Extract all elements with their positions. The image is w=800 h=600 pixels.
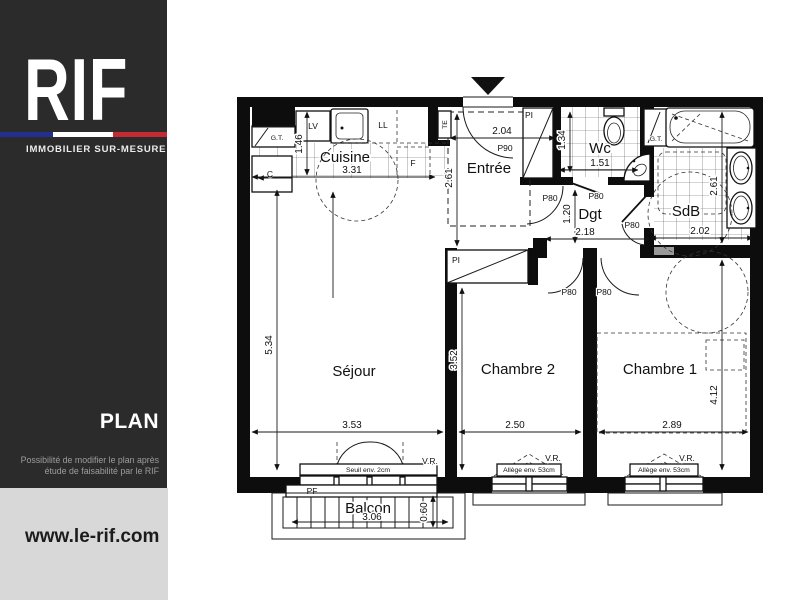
room-sejour: Séjour 5.34 3.53 Seuil env. 2cm V.R. — [252, 190, 443, 475]
bed-dashed — [597, 333, 746, 433]
room-dgt: Dgt 1.20 2.18 P80 P80 — [545, 190, 650, 297]
dim-cuisine-depth: 1.46 — [294, 134, 305, 154]
label-vr-sejour: V.R. — [422, 456, 438, 466]
section-title: PLAN — [100, 410, 159, 434]
flag-white-segment — [53, 132, 113, 137]
label-seuil: Seuil env. 2cm — [346, 467, 390, 474]
label-allege-ch1: Allège env. 53cm — [638, 467, 690, 474]
label-lv: LV — [308, 121, 318, 131]
room-cuisine: LV LL G.T. C F Cuisine 3.31 1.46 — [252, 109, 448, 298]
dim-balcon-width: 3.06 — [362, 512, 382, 523]
dim-chambre2-depth: 3.52 — [449, 350, 460, 370]
room-chambre1: Chambre 1 4.12 2.89 — [597, 251, 748, 470]
room-label-sejour: Séjour — [332, 363, 375, 380]
dim-dgt-width: 2.18 — [575, 227, 595, 238]
label-pf: PF — [307, 486, 318, 496]
french-door — [337, 442, 403, 465]
plan-note-line1: Possibilité de modifier le plan après — [4, 455, 159, 466]
balcony: Balcon 3.06 0.60 — [272, 493, 465, 539]
dim-sdb-width: 2.02 — [690, 226, 710, 237]
chambre2-closet-pi: PI — [447, 250, 528, 283]
website-text: www.le-rif.com — [25, 526, 159, 548]
entrance-arrow-icon — [471, 77, 505, 95]
room-entree: TE PI 2.04 P90 2.61 Entrée P80 — [438, 108, 563, 246]
room-label-chambre1: Chambre 1 — [623, 361, 697, 378]
label-gt-sdb: G.T. — [650, 136, 663, 143]
double-washbasin — [727, 148, 756, 228]
dim-entree-width: 2.04 — [492, 126, 512, 137]
bathtub — [666, 108, 754, 147]
dim-cuisine-width: 3.31 — [342, 165, 362, 176]
label-te: TE — [442, 120, 449, 129]
brand-logo: RIF — [24, 50, 128, 130]
dim-balcon-depth: 0.60 — [419, 502, 430, 522]
room-label-entree: Entrée — [467, 160, 511, 177]
label-pi-chambre2: PI — [452, 255, 460, 265]
porte-fenetre: PF — [286, 476, 437, 497]
nightstand-dashed — [706, 340, 744, 370]
sdb-door-leaf — [622, 196, 646, 222]
label-vr-ch2: V.R. — [545, 453, 561, 463]
plan-note-line2: étude de faisabilité par le RIF — [4, 466, 159, 477]
dim-chambre1-width: 2.89 — [662, 420, 682, 431]
dim-dgt-depth: 1.20 — [562, 204, 573, 224]
entree-closet-pi: PI — [523, 108, 553, 178]
dim-sejour-depth: 5.34 — [264, 335, 275, 355]
flyer-page: LV LL G.T. C F Cuisine 3.31 1.46 TE PI — [0, 0, 800, 600]
dim-entree-depth: 2.61 — [444, 168, 455, 188]
sidebar: RIF IMMOBILIER SUR-MESURE PLAN Possibili… — [0, 0, 167, 488]
wall-niche — [654, 247, 674, 255]
threshold: Seuil env. 2cm — [300, 464, 437, 475]
tricolor-stripe — [0, 132, 167, 137]
label-gt-kitchen: G.T. — [271, 135, 284, 142]
room-label-cuisine: Cuisine — [320, 149, 370, 166]
entree-dgt-door-arc — [527, 186, 563, 224]
te-box: TE — [438, 111, 451, 138]
gaine-technique-sdb: G.T. — [644, 109, 668, 146]
label-p80-wc: P80 — [588, 191, 603, 201]
dim-sdb-depth: 2.61 — [709, 176, 720, 196]
label-p80-chambre1: P80 — [596, 287, 611, 297]
label-ll: LL — [378, 120, 388, 130]
chambre1-clearance-dashed — [666, 251, 748, 333]
room-label-dgt: Dgt — [578, 206, 602, 223]
room-label-sdb: SdB — [672, 203, 700, 220]
label-pi-entree: PI — [525, 110, 533, 120]
label-p80-sdb: P80 — [624, 220, 639, 230]
footer-box: www.le-rif.com — [0, 488, 168, 600]
flag-red-segment — [113, 132, 167, 137]
label-c: C — [267, 169, 273, 179]
kitchen-sink — [331, 109, 368, 143]
room-chambre2: PI Chambre 2 3.52 2.50 — [447, 250, 581, 470]
flag-blue-segment — [0, 132, 53, 137]
label-p80-entree: P80 — [542, 193, 557, 203]
dim-sejour-width: 3.53 — [342, 420, 362, 431]
dim-wc-width: 1.51 — [590, 158, 610, 169]
dim-chambre2-width: 2.50 — [505, 420, 525, 431]
label-p80-chambre2: P80 — [561, 287, 576, 297]
label-f: F — [410, 158, 415, 168]
dim-chambre1-depth: 4.12 — [709, 385, 720, 405]
dim-wc-depth: 1.34 — [557, 130, 568, 150]
brand-tagline: IMMOBILIER SUR-MESURE — [26, 144, 166, 155]
plan-note: Possibilité de modifier le plan après ét… — [4, 455, 159, 476]
label-vr-ch1: V.R. — [679, 453, 695, 463]
room-label-chambre2: Chambre 2 — [481, 361, 555, 378]
label-allege-ch2: Allège env. 53cm — [503, 467, 555, 474]
room-label-wc: Wc — [589, 140, 611, 157]
label-p90: P90 — [497, 143, 512, 153]
